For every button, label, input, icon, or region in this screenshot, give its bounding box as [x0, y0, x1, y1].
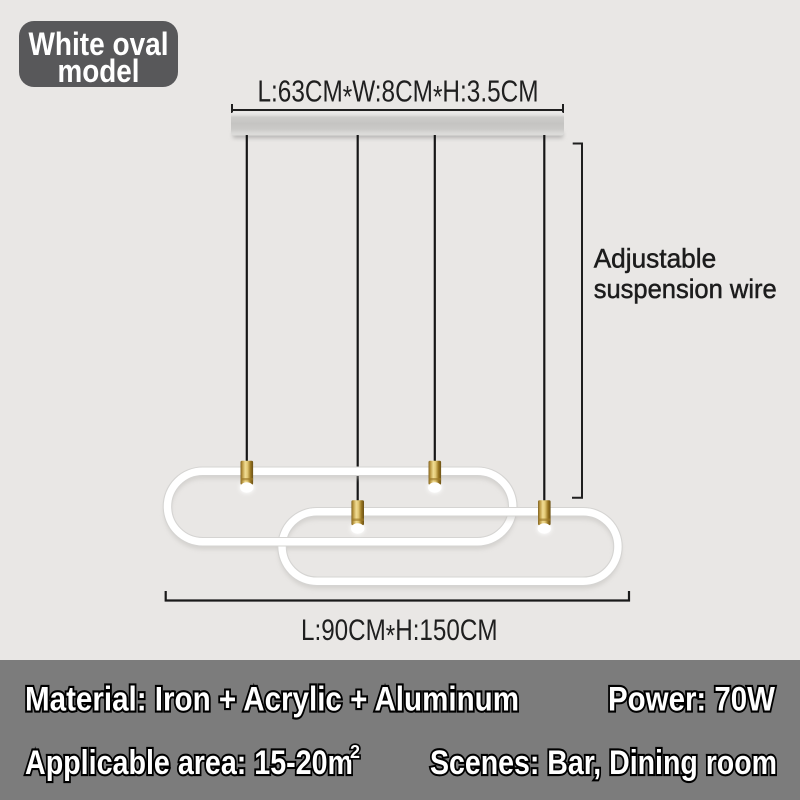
svg-text:L:63CM*W:8CM*H:3.5CM: L:63CM*W:8CM*H:3.5CM [258, 74, 539, 115]
svg-text:model: model [58, 53, 140, 89]
svg-text:2: 2 [350, 742, 360, 762]
svg-text:Material: Iron + Acrylic + Alu: Material: Iron + Acrylic + Aluminum [25, 681, 519, 719]
svg-text:Applicable area: 15-20m: Applicable area: 15-20m [25, 744, 353, 782]
svg-text:Power: 70W: Power: 70W [608, 681, 776, 719]
svg-text:L:90CM*H:150CM: L:90CM*H:150CM [301, 614, 498, 653]
svg-text:Adjustable: Adjustable [594, 244, 717, 274]
svg-text:suspension wire: suspension wire [594, 274, 777, 304]
svg-text:Scenes: Bar, Dining room: Scenes: Bar, Dining room [430, 744, 777, 782]
